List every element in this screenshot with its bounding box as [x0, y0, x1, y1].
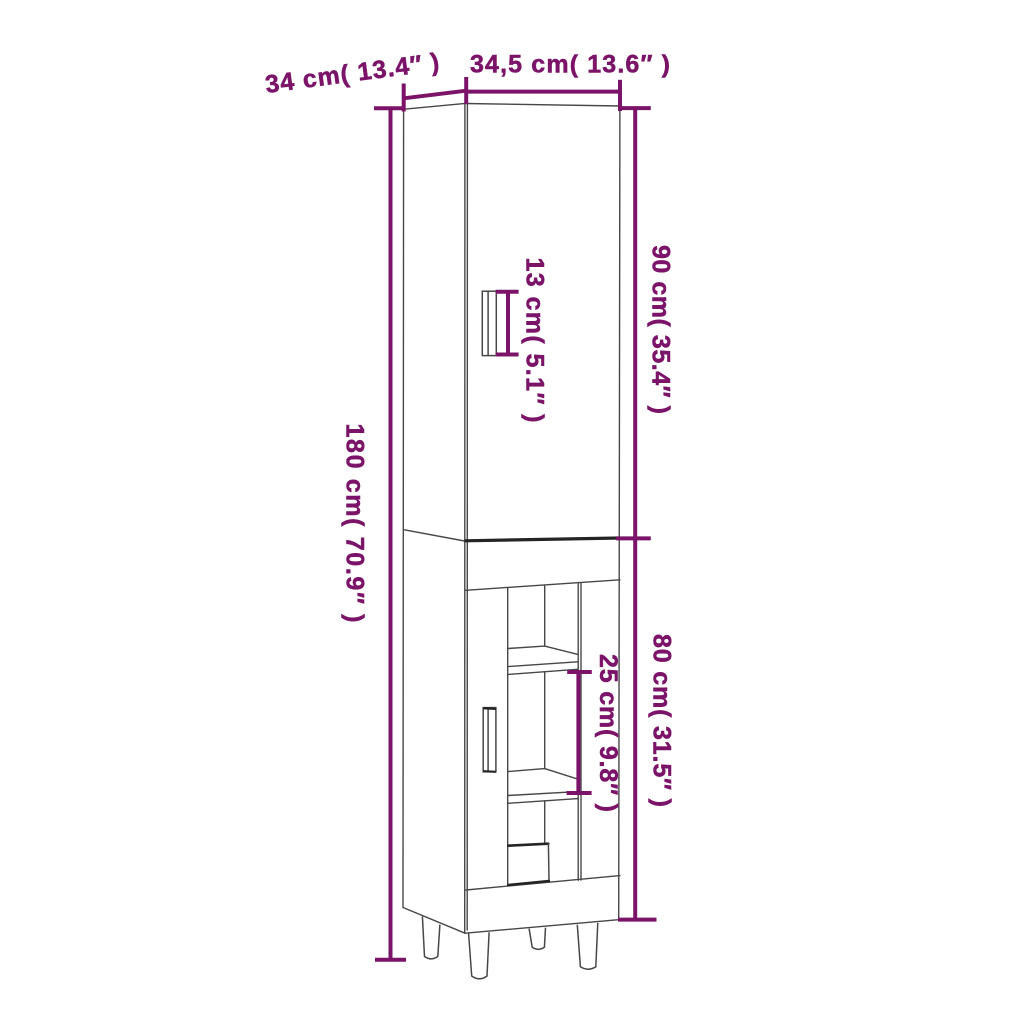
svg-text:34,5 cm( 13.6″ ): 34,5 cm( 13.6″ ): [470, 51, 670, 79]
svg-text:80 cm( 31.5″ ): 80 cm( 31.5″ ): [648, 634, 676, 807]
svg-text:25 cm( 9.8″ ): 25 cm( 9.8″ ): [594, 654, 622, 812]
svg-text:90 cm( 35.4″ ): 90 cm( 35.4″ ): [647, 245, 675, 414]
svg-text:13 cm( 5.1″ ): 13 cm( 5.1″ ): [521, 258, 549, 423]
